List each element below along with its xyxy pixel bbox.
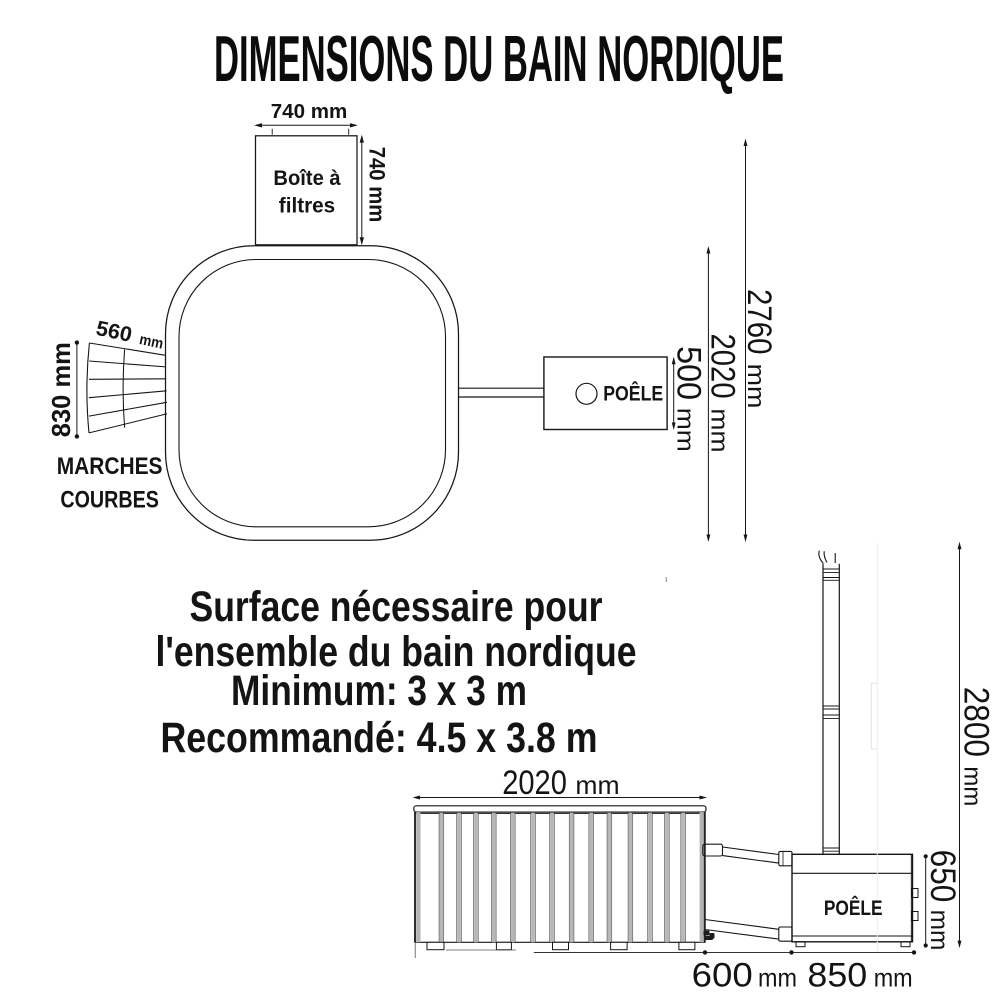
svg-text:2760: 2760 <box>740 289 778 355</box>
svg-text:mm: mm <box>959 766 986 806</box>
svg-text:POÊLE: POÊLE <box>603 381 663 405</box>
svg-text:filtres: filtres <box>279 193 335 217</box>
svg-text:mm: mm <box>706 408 733 452</box>
svg-text:740 mm: 740 mm <box>365 147 390 223</box>
svg-text:COURBES: COURBES <box>60 486 159 513</box>
svg-text:Boîte à: Boîte à <box>273 166 341 190</box>
svg-text:740 mm: 740 mm <box>271 101 348 123</box>
svg-text:mm: mm <box>874 963 913 993</box>
svg-text:mm: mm <box>742 364 769 409</box>
svg-text:500: 500 <box>669 346 707 400</box>
svg-text:2020: 2020 <box>502 764 567 802</box>
svg-text:DIMENSIONS DU BAIN NORDIQUE: DIMENSIONS DU BAIN NORDIQUE <box>214 24 784 96</box>
svg-text:2800: 2800 <box>957 687 996 757</box>
svg-text:MARCHES: MARCHES <box>57 453 163 480</box>
svg-text:mm: mm <box>575 770 619 800</box>
svg-text:Minimum: 3 x 3 m: Minimum: 3 x 3 m <box>231 667 527 715</box>
svg-text:mm: mm <box>925 910 953 951</box>
svg-text:mm: mm <box>758 963 797 993</box>
svg-text:830 mm: 830 mm <box>46 342 76 437</box>
svg-text:600: 600 <box>692 957 753 995</box>
svg-text:650: 650 <box>923 850 962 903</box>
svg-text:Recommandé: 4.5 x 3.8 m: Recommandé: 4.5 x 3.8 m <box>161 714 598 762</box>
svg-text:Surface nécessaire pour: Surface nécessaire pour <box>190 583 603 631</box>
svg-text:2020: 2020 <box>704 334 742 399</box>
svg-text:mm: mm <box>671 408 698 452</box>
svg-text:POÊLE: POÊLE <box>824 895 883 920</box>
svg-text:850: 850 <box>807 957 867 995</box>
